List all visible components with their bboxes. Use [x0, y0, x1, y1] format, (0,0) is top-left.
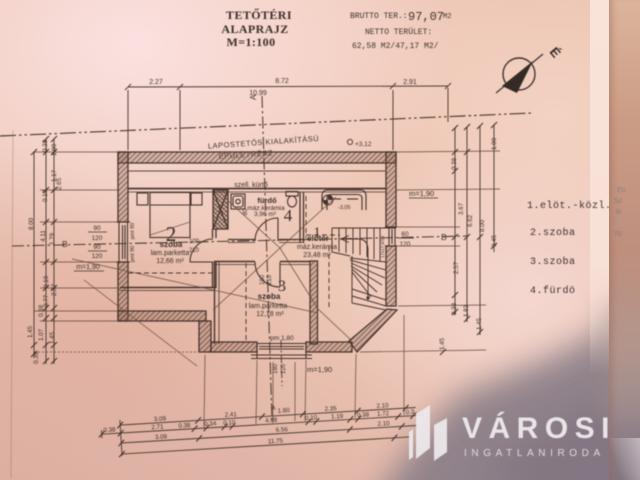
svg-text:2.57: 2.57 [453, 261, 460, 274]
svg-text:1.07: 1.07 [38, 328, 45, 341]
svg-text:1.19: 1.19 [331, 413, 344, 421]
svg-text:B: B [441, 232, 447, 242]
svg-text:3.szoba: 3.szoba [530, 256, 576, 268]
svg-text:1.45: 1.45 [476, 317, 483, 330]
svg-text:0.38: 0.38 [357, 411, 370, 419]
svg-text:m=1,90: m=1,90 [76, 264, 100, 271]
svg-text:0.34: 0.34 [204, 420, 217, 428]
svg-text:1.45: 1.45 [27, 325, 34, 338]
svg-text:80: 80 [243, 208, 249, 215]
svg-text:+3,12: +3,12 [355, 141, 372, 148]
svg-text:210: 210 [267, 274, 273, 285]
svg-text:-3,05: -3,05 [338, 205, 351, 211]
svg-text:4.08: 4.08 [265, 417, 278, 425]
svg-text:62,58 M2/47,17 M2/: 62,58 M2/47,17 M2/ [352, 42, 439, 51]
svg-text:BRUTTO TER.:: BRUTTO TER.: [350, 12, 408, 21]
svg-text:4.fürdö: 4.fürdö [530, 285, 576, 297]
svg-text:3.09: 3.09 [154, 415, 167, 423]
svg-text:0.10: 0.10 [223, 419, 236, 427]
svg-text:szell. kürtő: szell. kürtő [234, 182, 268, 189]
svg-text:1.00: 1.00 [491, 137, 498, 150]
svg-text:A: A [271, 405, 276, 412]
svg-text:0.38: 0.38 [451, 157, 458, 170]
svg-text:1.79: 1.79 [49, 232, 56, 245]
svg-text:100: 100 [189, 239, 200, 245]
svg-text:1.80: 1.80 [277, 407, 290, 415]
svg-text:lam.parketta: lam.parketta [249, 303, 288, 310]
svg-text:2.71: 2.71 [151, 423, 164, 431]
svg-text:0.38: 0.38 [178, 422, 191, 430]
svg-text:100: 100 [260, 274, 266, 285]
svg-text:8.00: 8.00 [28, 217, 35, 230]
svg-text:120: 120 [281, 363, 287, 374]
svg-text:6.62: 6.62 [467, 214, 474, 227]
svg-text:szoba: szoba [160, 240, 183, 249]
svg-text:4: 4 [284, 206, 293, 225]
svg-text:0.38: 0.38 [42, 139, 49, 152]
svg-text:120: 120 [92, 253, 103, 260]
svg-text:1.45: 1.45 [49, 331, 56, 344]
svg-text:0.10: 0.10 [305, 414, 318, 422]
svg-text:4.11: 4.11 [40, 230, 47, 242]
svg-text:1.72: 1.72 [377, 410, 390, 418]
svg-text:210: 210 [189, 248, 200, 254]
svg-text:1.elöt.-közl.: 1.elöt.-közl. [527, 200, 612, 212]
svg-text:INGATLANIRODA: INGATLANIRODA [464, 448, 605, 459]
svg-text:1.45: 1.45 [439, 337, 446, 350]
svg-text:8.72: 8.72 [275, 78, 289, 85]
svg-text:97,07: 97,07 [408, 10, 444, 24]
svg-text:180: 180 [273, 363, 279, 374]
svg-text:2.10: 2.10 [377, 420, 390, 428]
svg-text:m=1,90: m=1,90 [307, 365, 332, 374]
svg-text:3.09: 3.09 [155, 433, 168, 441]
svg-text:M=1:100: M=1:100 [227, 35, 276, 49]
svg-text:0.10: 0.10 [42, 189, 49, 202]
svg-text:VÁROSI: VÁROSI [462, 411, 616, 445]
svg-text:2.41: 2.41 [225, 411, 238, 419]
svg-text:6.56: 6.56 [276, 426, 289, 434]
svg-text:M2: M2 [443, 13, 451, 21]
svg-text:2.37: 2.37 [51, 283, 58, 296]
svg-text:m=1,90: m=1,90 [409, 189, 434, 198]
svg-text:60: 60 [401, 231, 409, 238]
svg-text:1.00: 1.00 [51, 143, 58, 156]
svg-text:0.38: 0.38 [33, 351, 40, 364]
svg-text:1.83: 1.83 [463, 304, 470, 317]
svg-text:90: 90 [93, 225, 101, 232]
svg-text:8.00: 8.00 [479, 219, 486, 232]
svg-text:É: É [547, 44, 564, 61]
svg-text:szoba: szoba [258, 292, 281, 301]
svg-text:17x17,6/29: 17x17,6/29 [380, 235, 385, 258]
svg-text:0.38: 0.38 [38, 304, 45, 317]
svg-text:12,18 m²: 12,18 m² [256, 311, 284, 318]
svg-text:0.38: 0.38 [451, 302, 458, 315]
svg-text:pml 90: pml 90 [130, 223, 136, 240]
svg-text:2.27: 2.27 [149, 79, 163, 86]
svg-text:2.91: 2.91 [403, 79, 417, 86]
svg-text:90: 90 [93, 244, 101, 251]
svg-text:2.10: 2.10 [376, 402, 389, 410]
svg-text:pm 1,80: pm 1,80 [270, 335, 294, 342]
svg-text:TETŐTÉRI: TETŐTÉRI [226, 7, 292, 22]
svg-text:0.10: 0.10 [43, 275, 50, 288]
svg-text:23,48 m²: 23,48 m² [303, 252, 331, 259]
svg-text:NETTO TERÜLET:: NETTO TERÜLET: [365, 28, 432, 37]
svg-text:B: B [62, 239, 68, 249]
svg-text:120: 120 [92, 235, 103, 242]
svg-text:2.szoba: 2.szoba [530, 227, 576, 239]
svg-text:2.35: 2.35 [324, 405, 337, 413]
svg-text:ALAPRAJZ: ALAPRAJZ [221, 22, 288, 36]
svg-text:fürdő: fürdő [257, 196, 277, 205]
svg-text:9.45: 9.45 [491, 234, 498, 247]
svg-text:lam.parketta: lam.parketta [151, 250, 190, 257]
svg-text:pml 90: pml 90 [130, 246, 136, 263]
svg-text:máz.kerámia: máz.kerámia [297, 244, 337, 251]
svg-text:2.65: 2.65 [56, 177, 63, 190]
svg-text:12,66 m²: 12,66 m² [156, 258, 184, 265]
svg-text:A: A [249, 94, 258, 100]
svg-text:elötér: elötér [307, 234, 329, 243]
svg-text:120: 120 [400, 241, 411, 248]
svg-text:0.3: 0.3 [405, 409, 415, 417]
svg-text:0.38: 0.38 [103, 426, 116, 434]
svg-text:3.67: 3.67 [458, 202, 465, 215]
svg-text:3,96 m²: 3,96 m² [254, 211, 277, 218]
svg-text:11.75: 11.75 [268, 437, 284, 445]
